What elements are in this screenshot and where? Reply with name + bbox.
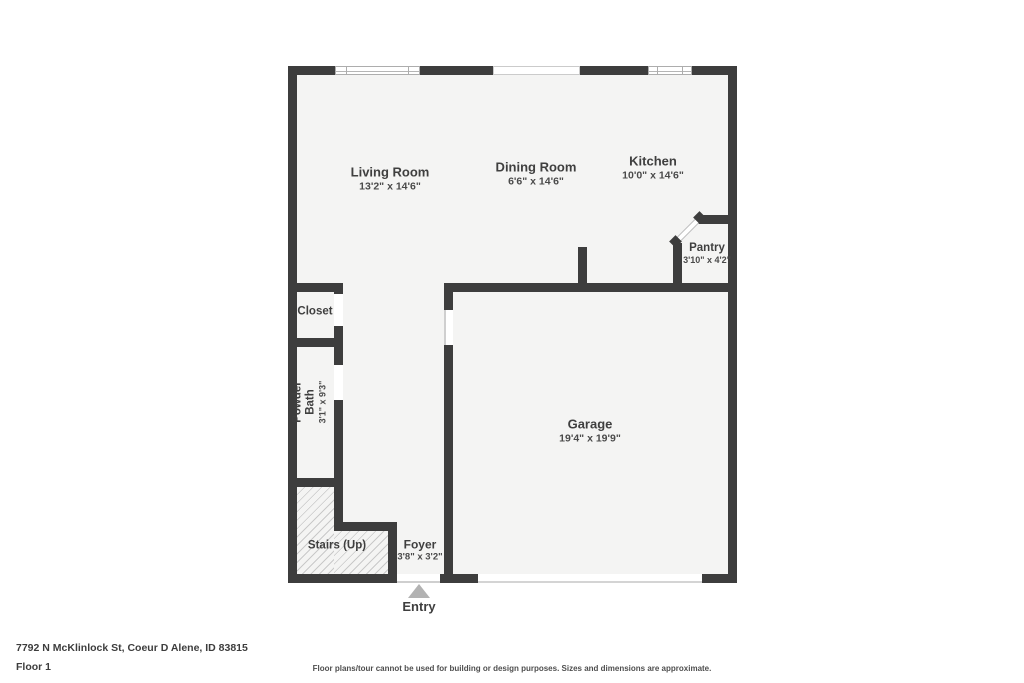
room-dims: 3'10" x 4'2": [683, 255, 731, 266]
room-label-pantry: Pantry 3'10" x 4'2": [683, 242, 731, 266]
room-label-closet: Closet: [297, 306, 332, 319]
wall-hall-column: [334, 326, 343, 365]
room-name: Stairs (Up): [308, 540, 366, 553]
room-name: Foyer: [397, 538, 442, 552]
wall-bottom-left: [288, 574, 397, 583]
wall-stairs-step-h: [334, 522, 397, 531]
wall-bottom-mid: [440, 574, 478, 583]
wall-right: [728, 66, 737, 583]
room-label-stairs: Stairs (Up): [308, 540, 366, 553]
wall-left: [288, 66, 297, 583]
address-text: 7792 N McKlinlock St, Coeur D Alene, ID …: [16, 642, 248, 654]
room-name: Closet: [297, 306, 332, 319]
stairs-hatch-area: [297, 487, 334, 574]
window-mullion: [657, 67, 658, 74]
floor-area: [288, 66, 737, 583]
room-name: Pantry: [683, 242, 731, 255]
window-mullion: [346, 67, 347, 74]
window-symbol: [335, 66, 420, 75]
entry-arrow-icon: [408, 584, 430, 598]
room-label-powder-bath: Powder Bath 3'1" x 9'3": [292, 381, 329, 424]
floorplan-page: Living Room 13'2" x 14'6" Dining Room 6'…: [0, 0, 1024, 683]
room-name: Kitchen: [622, 154, 684, 170]
wall-powder-bottom: [288, 478, 343, 487]
disclaimer-text: Floor plans/tour cannot be used for buil…: [0, 664, 1024, 673]
garage-entry-door-opening: [444, 310, 453, 345]
room-dims: 10'0" x 14'6": [622, 170, 684, 183]
room-name: Dining Room: [496, 160, 577, 176]
closet-door-opening: [334, 294, 343, 326]
room-name: Entry: [402, 599, 435, 615]
wall-pantry-left: [673, 243, 682, 283]
wall-garage-left: [444, 283, 453, 310]
wall-dining-kitchen-stub: [578, 247, 587, 283]
room-label-garage: Garage 19'4" x 19'9": [559, 417, 621, 446]
room-dims: 6'6" x 14'6": [496, 176, 577, 189]
room-name: Living Room: [351, 165, 430, 181]
room-dims: 19'4" x 19'9": [559, 433, 621, 446]
window-symbol: [648, 66, 692, 75]
stairs-hatch-area: [334, 531, 388, 574]
window-symbol: [493, 66, 580, 75]
room-label-living: Living Room 13'2" x 14'6": [351, 165, 430, 194]
wall-hall-column: [334, 283, 343, 294]
window-mullion: [682, 67, 683, 74]
room-name: Bath: [305, 381, 318, 424]
entry-door-opening: [397, 574, 440, 583]
room-label-foyer: Foyer 3'8" x 3'2": [397, 538, 442, 563]
garage-door-opening: [478, 574, 702, 583]
wall-foyer-left: [388, 531, 397, 574]
room-name: Garage: [559, 417, 621, 433]
wall-bottom-right: [702, 574, 737, 583]
room-dims: 3'1" x 9'3": [318, 381, 329, 424]
entry-label: Entry: [402, 599, 435, 615]
powder-bath-door-opening: [334, 365, 343, 400]
wall-garage-left: [444, 345, 453, 574]
room-label-kitchen: Kitchen 10'0" x 14'6": [622, 154, 684, 183]
window-mullion: [408, 67, 409, 74]
room-dims: 13'2" x 14'6": [351, 181, 430, 194]
wall-garage-top: [444, 283, 737, 292]
room-dims: 3'8" x 3'2": [397, 552, 442, 563]
wall-hall-column: [334, 400, 343, 531]
room-label-dining: Dining Room 6'6" x 14'6": [496, 160, 577, 189]
room-name: Powder: [292, 381, 305, 424]
